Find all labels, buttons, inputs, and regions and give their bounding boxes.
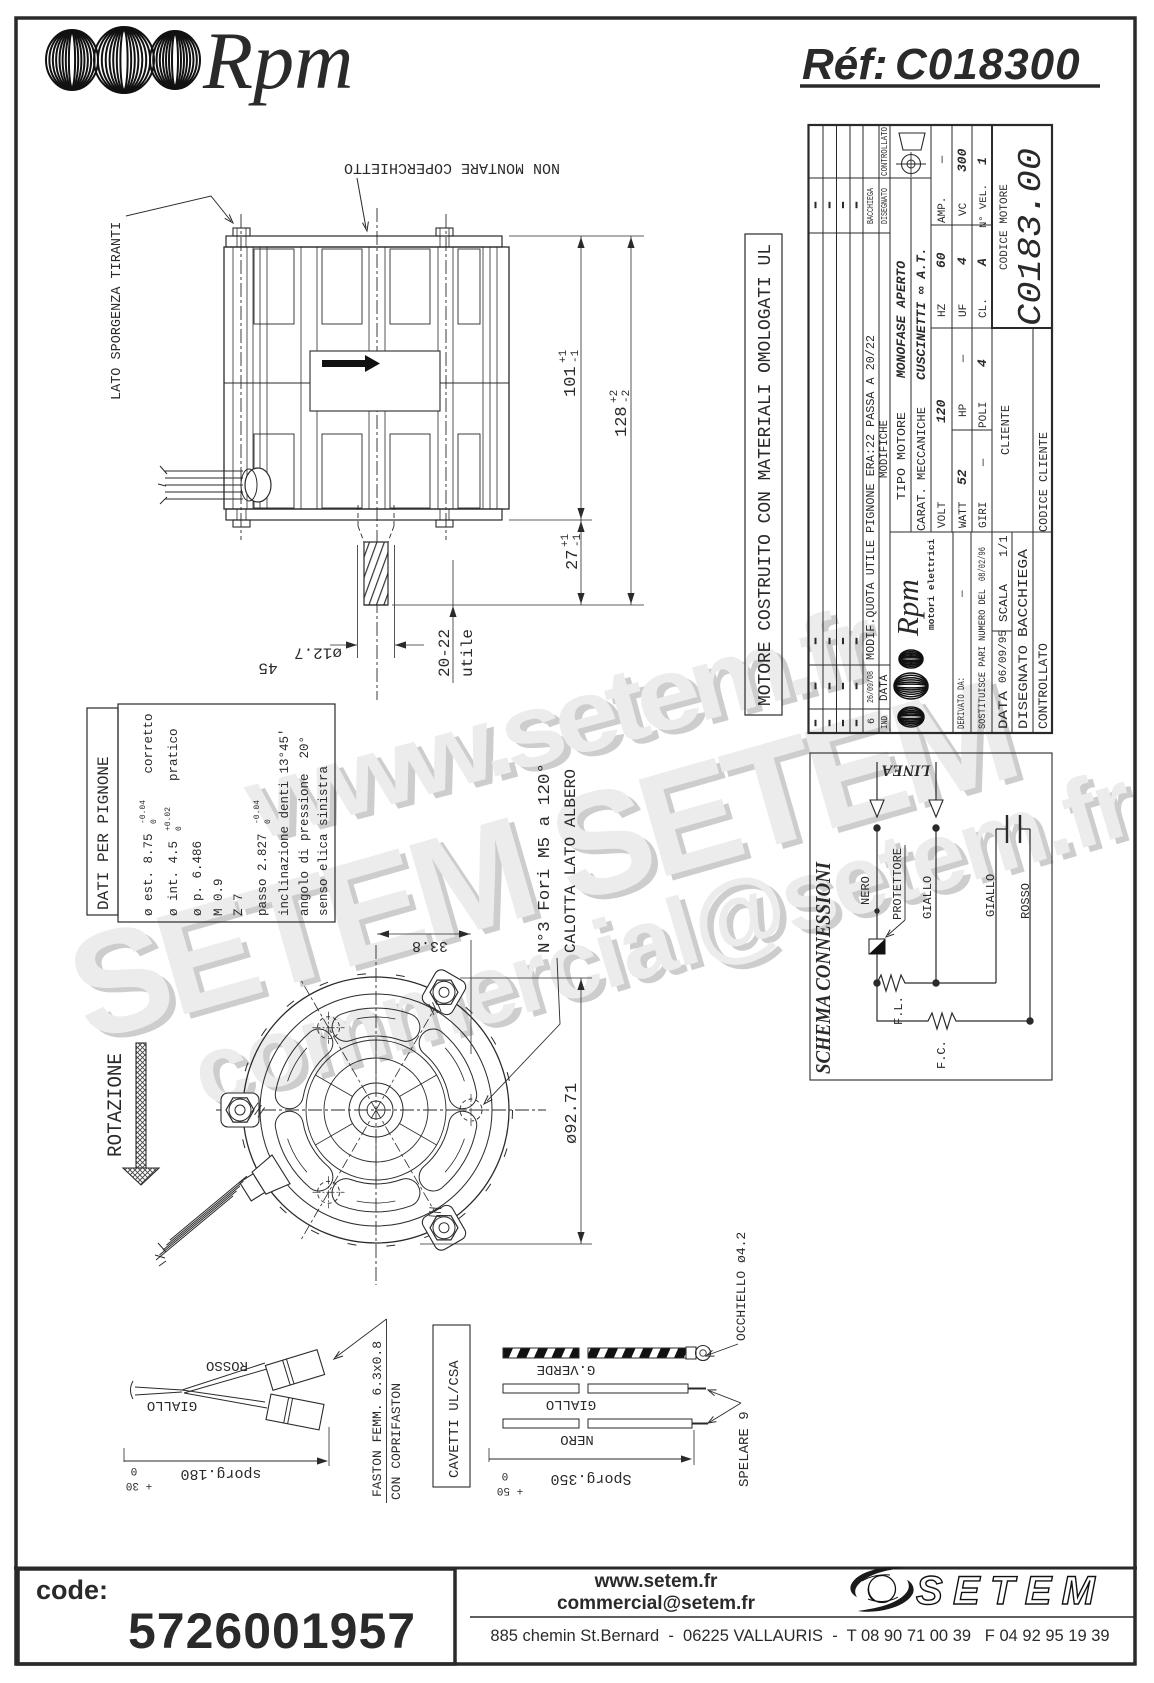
svg-text:0: 0	[131, 1464, 138, 1476]
svg-text:MODIFICHE: MODIFICHE	[879, 420, 891, 478]
svg-text:26/09/08: 26/09/08	[865, 671, 876, 703]
svg-text:4: 4	[955, 257, 970, 265]
svg-text:ROTAZIONE: ROTAZIONE	[105, 1053, 128, 1157]
svg-text:C018300: C018300	[895, 40, 1081, 89]
svg-text:Réf:: Réf:	[802, 40, 888, 89]
svg-text:G.VERDE: G.VERDE	[537, 1361, 596, 1377]
svg-text:OCCHIELLO ø4.2: OCCHIELLO ø4.2	[734, 1232, 749, 1341]
svg-text:UF: UF	[958, 304, 970, 317]
svg-text:20-22: 20-22	[436, 629, 454, 677]
svg-text:senso elica sinistra: senso elica sinistra	[317, 765, 331, 916]
svg-text:commercial@setem.fr: commercial@setem.fr	[557, 1593, 756, 1614]
svg-text:MONOFASE APERTO: MONOFASE APERTO	[894, 261, 909, 379]
svg-text:DATA: DATA	[996, 691, 1011, 729]
svg-text:-0.04: -0.04	[139, 800, 148, 824]
svg-text:PROTETTORE: PROTETTORE	[891, 848, 905, 920]
svg-text:ROSSO: ROSSO	[1019, 883, 1033, 919]
svg-text:27: 27	[564, 550, 583, 570]
svg-text:45: 45	[258, 658, 277, 676]
svg-text:LINEA: LINEA	[881, 761, 931, 778]
svg-text:GIALLO: GIALLO	[147, 1397, 197, 1413]
svg-text:DISEGNATO: DISEGNATO	[879, 188, 890, 224]
svg-text:0: 0	[264, 819, 273, 824]
svg-text:5726001957: 5726001957	[128, 1603, 416, 1659]
svg-text:MOTORE COSTRUITO CON MATERIALI: MOTORE COSTRUITO CON MATERIALI OMOLOGATI…	[756, 244, 776, 706]
svg-text:SETEM: SETEM	[916, 1569, 1104, 1613]
svg-text:SPELARE 9: SPELARE 9	[737, 1411, 753, 1487]
svg-text:CONTROLLATO: CONTROLLATO	[879, 127, 890, 176]
svg-text:MODIF.QUOTA UTILE PIGNONE ERA:: MODIF.QUOTA UTILE PIGNONE ERA:22 PASSA A…	[864, 335, 878, 660]
svg-text:DISEGNATO: DISEGNATO	[1016, 645, 1031, 729]
svg-text:HZ: HZ	[937, 303, 949, 317]
svg-text:0: 0	[502, 1469, 509, 1481]
svg-text:33.8: 33.8	[412, 937, 448, 954]
svg-text:+2: +2	[609, 390, 621, 403]
svg-text:CODICE CLIENTE: CODICE CLIENTE	[1037, 432, 1051, 532]
svg-text:08/02/96: 08/02/96	[977, 547, 989, 581]
svg-text:—: —	[976, 458, 990, 467]
svg-text:BACCHIEGA: BACCHIEGA	[1016, 548, 1032, 637]
svg-text:angolo di pressione 20°: angolo di pressione 20°	[298, 736, 312, 916]
svg-text:F.C.: F.C.	[935, 1040, 949, 1069]
svg-text:IND: IND	[879, 716, 890, 729]
svg-text:CARAT. MECCANICHE: CARAT. MECCANICHE	[915, 407, 929, 531]
svg-text:+1: +1	[558, 349, 570, 363]
svg-text:HP: HP	[958, 403, 970, 417]
svg-text:code:: code:	[36, 1575, 108, 1605]
svg-text:CODICE MOTORE: CODICE MOTORE	[999, 184, 1011, 270]
svg-text:LATO SPORGENZA TIRANTI: LATO SPORGENZA TIRANTI	[110, 222, 125, 400]
svg-text:120: 120	[934, 399, 949, 423]
svg-text:GIALLO: GIALLO	[546, 1396, 596, 1412]
svg-text:inclinazione denti 13°45': inclinazione denti 13°45'	[278, 728, 292, 916]
svg-text:ø p. 6.486: ø p. 6.486	[191, 841, 205, 916]
svg-text:NON MONTARE COPERCHIETTO: NON MONTARE COPERCHIETTO	[344, 159, 560, 176]
svg-text:CON COPRIFASTON: CON COPRIFASTON	[389, 1383, 404, 1500]
svg-text:DATI PER PIGNONE: DATI PER PIGNONE	[95, 756, 113, 910]
svg-text:SOSTITUISCE PARI NUMERO DEL: SOSTITUISCE PARI NUMERO DEL	[978, 589, 989, 729]
svg-text:101: 101	[562, 366, 581, 397]
svg-text:passo 2.827: passo 2.827	[256, 833, 270, 916]
svg-text:CONTROLLATO: CONTROLLATO	[1037, 643, 1051, 729]
svg-text:WATT: WATT	[958, 501, 970, 528]
svg-text:A: A	[975, 258, 990, 267]
svg-text:NERO: NERO	[859, 876, 873, 905]
svg-text:DATA: DATA	[879, 674, 891, 701]
svg-text:-2: -2	[621, 390, 633, 403]
svg-text:-1: -1	[572, 533, 584, 547]
svg-text:6: 6	[867, 718, 878, 724]
svg-text:CALOTTA LATO ALBERO: CALOTTA LATO ALBERO	[562, 769, 580, 953]
svg-text:+1: +1	[560, 533, 572, 547]
svg-text:BACCHIEGA: BACCHIEGA	[865, 188, 876, 224]
svg-text:motori elettrici: motori elettrici	[926, 538, 937, 630]
svg-text:VC: VC	[958, 202, 970, 216]
svg-text:CAVETTI UL/CSA: CAVETTI UL/CSA	[447, 1360, 463, 1478]
svg-text:-0.04: -0.04	[253, 800, 262, 824]
svg-text:885 chemin St.Bernard - 0622: 885 chemin St.Bernard - 06225 VALLAURIS …	[490, 1627, 1109, 1645]
svg-text:sporg.180: sporg.180	[180, 1465, 261, 1482]
svg-text:ø92.71: ø92.71	[563, 1083, 582, 1144]
svg-text:FASTON FEMM. 6.3x0.8: FASTON FEMM. 6.3x0.8	[370, 1341, 385, 1497]
svg-text:1/1: 1/1	[997, 535, 1011, 557]
svg-text:—: —	[956, 354, 970, 363]
svg-text:52: 52	[955, 469, 970, 485]
svg-text:C0183.00: C0183.00	[1013, 148, 1050, 326]
svg-text:CL.: CL.	[978, 298, 990, 318]
svg-text:ROSSO: ROSSO	[206, 1357, 248, 1373]
svg-text:GIRI: GIRI	[978, 502, 990, 528]
svg-text:AMP.: AMP.	[937, 197, 949, 223]
svg-text:SCALA: SCALA	[997, 583, 1011, 622]
svg-text:NERO: NERO	[560, 1431, 594, 1447]
svg-text:Sporg.350: Sporg.350	[550, 1470, 631, 1487]
svg-text:N° VEL.: N° VEL.	[978, 184, 990, 228]
svg-text:M 0.9: M 0.9	[212, 878, 226, 916]
svg-text:VOLT: VOLT	[937, 501, 949, 528]
svg-text:1: 1	[975, 157, 990, 165]
svg-text:4: 4	[975, 359, 990, 367]
svg-text:CUSCINETTI ∞ A.T.: CUSCINETTI ∞ A.T.	[914, 247, 929, 380]
svg-text:-1: -1	[570, 349, 582, 363]
svg-text:POLI: POLI	[978, 402, 990, 428]
svg-text:+ 50: + 50	[497, 1484, 523, 1496]
svg-text:0: 0	[150, 819, 159, 824]
svg-text:128: 128	[613, 406, 632, 437]
svg-text:Rpm: Rpm	[890, 579, 925, 637]
svg-text:Rpm: Rpm	[202, 15, 353, 106]
svg-text:utile: utile	[459, 629, 477, 677]
svg-text:+ 30: + 30	[126, 1479, 152, 1491]
svg-text:06/09/95: 06/09/95	[998, 630, 1010, 683]
svg-text:0: 0	[175, 826, 184, 831]
svg-text:—: —	[957, 590, 969, 598]
svg-text:+0.02: +0.02	[164, 807, 173, 831]
svg-text:—: —	[935, 155, 949, 164]
svg-text:300: 300	[955, 148, 970, 172]
svg-text:DERIVATO DA:: DERIVATO DA:	[957, 677, 968, 729]
svg-text:GIALLO: GIALLO	[921, 876, 935, 919]
svg-text:SCHEMA CONNESSIONI: SCHEMA CONNESSIONI	[811, 861, 835, 1074]
svg-text:60: 60	[934, 252, 949, 268]
svg-text:TIPO MOTORE: TIPO MOTORE	[895, 412, 909, 500]
svg-text:N°3 Fori M5 a 120°: N°3 Fori M5 a 120°	[536, 763, 555, 953]
svg-text:CLIENTE: CLIENTE	[999, 405, 1013, 455]
svg-text:Z 7: Z 7	[232, 893, 246, 916]
svg-text:www.setem.fr: www.setem.fr	[594, 1571, 718, 1592]
svg-text:ø12.7: ø12.7	[294, 643, 342, 661]
